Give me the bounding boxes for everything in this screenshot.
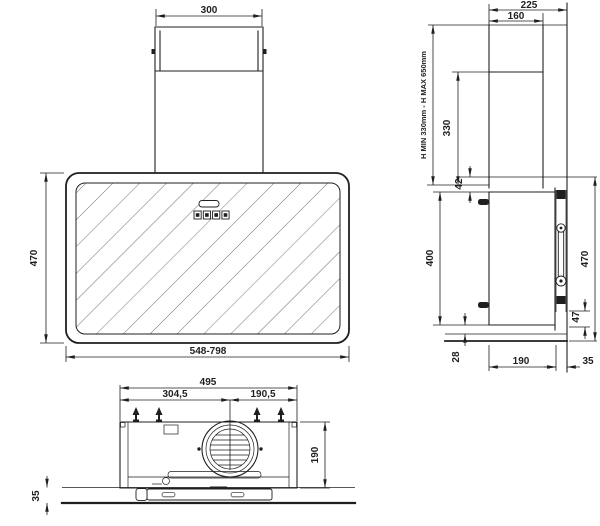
dim-label-side-overall-height: 470 [580,250,591,267]
dim-label-side-wall-gap: 35 [582,356,594,367]
dim-label-bottom-body-width: 495 [200,377,217,388]
dim-bottom-glass-offset: 35 [31,476,47,515]
mounting-clip [278,407,285,423]
dim-side-height-range: H MIN 330mm - H MAX 650mm [419,25,489,185]
dim-label-side-bottom-offset: 28 [451,351,462,363]
dim-label-bottom-vent-right: 190,5 [250,389,275,400]
dim-label-bottom-vent-left: 304,5 [162,389,187,400]
dim-label-bottom-depth: 190 [310,446,321,463]
dim-front-chimney-width: 300 [156,5,262,26]
mounting-pin-bottom [478,302,489,308]
junction-box [164,425,178,434]
side-chimney [489,4,543,188]
dim-bottom-vent-position: 304,5 190,5 [120,389,297,470]
front-chimney-outline [155,27,263,173]
dim-label-front-chimney-width: 300 [201,5,218,16]
dim-side-top-offset: 42 [433,166,489,203]
front-view: 300 [29,5,349,362]
dim-front-height: 470 [29,173,64,343]
dim-label-side-top-offset: 42 [454,178,465,190]
vent-bolt-left [197,447,200,450]
side-view: 225 160 H MIN 330mm - H MAX 650mm 330 42 [419,0,597,372]
side-hood-outline [489,188,555,330]
mounting-clip [133,407,140,423]
front-chimney-clip-left [152,49,156,54]
dim-side-bottom-offset: 28 [451,313,465,363]
front-chimney [152,27,267,173]
dim-label-bottom-glass-offset: 35 [31,490,42,502]
mounting-clip [254,407,261,423]
vent-bolt-right [259,447,262,450]
dim-side-bracket-height: 47 [569,299,590,339]
bracket-bar [136,489,272,501]
mounting-pin-top [478,199,489,205]
lamp-detail [163,478,170,485]
dim-label-side-bracket-height: 47 [571,311,582,323]
dim-side-total-depth: 225 [489,0,567,11]
dim-label-side-body-height: 400 [425,249,436,266]
dim-label-side-height-range: H MIN 330mm - H MAX 650mm [419,51,428,159]
front-hood-body [66,173,349,343]
side-chimney-outline [489,25,543,188]
mounting-clip [156,407,163,423]
dim-label-side-chimney-depth: 160 [508,11,525,22]
turnbuckle-adjuster [556,224,566,286]
front-chimney-clip-right [263,49,267,54]
dim-label-front-width-range: 548-798 [190,346,227,357]
mounting-clips [133,407,285,423]
dim-label-side-total-depth: 225 [521,0,538,11]
dim-label-side-body-depth: 190 [513,356,530,367]
dim-front-width-range: 548-798 [66,346,349,362]
wall-mounting-bracket [556,190,566,312]
dim-bottom-depth: 190 [300,422,330,488]
side-hood-body [478,188,555,330]
vent-grille [168,421,263,478]
display-window [199,201,219,208]
dim-side-wall-gap: 35 [544,356,594,367]
glass-panel-bottom [62,488,355,504]
bottom-view: 495 304,5 190,5 [31,377,355,515]
dim-side-chimney-extension: 330 [442,72,489,185]
technical-drawing-page: 300 [0,0,600,526]
dim-label-side-chimney-extension: 330 [442,119,453,136]
dim-label-front-height: 470 [29,249,40,266]
bracket-end-cap [136,489,147,501]
hood-dimension-drawing: 300 [0,0,600,526]
dim-side-chimney-depth: 160 [489,11,543,22]
